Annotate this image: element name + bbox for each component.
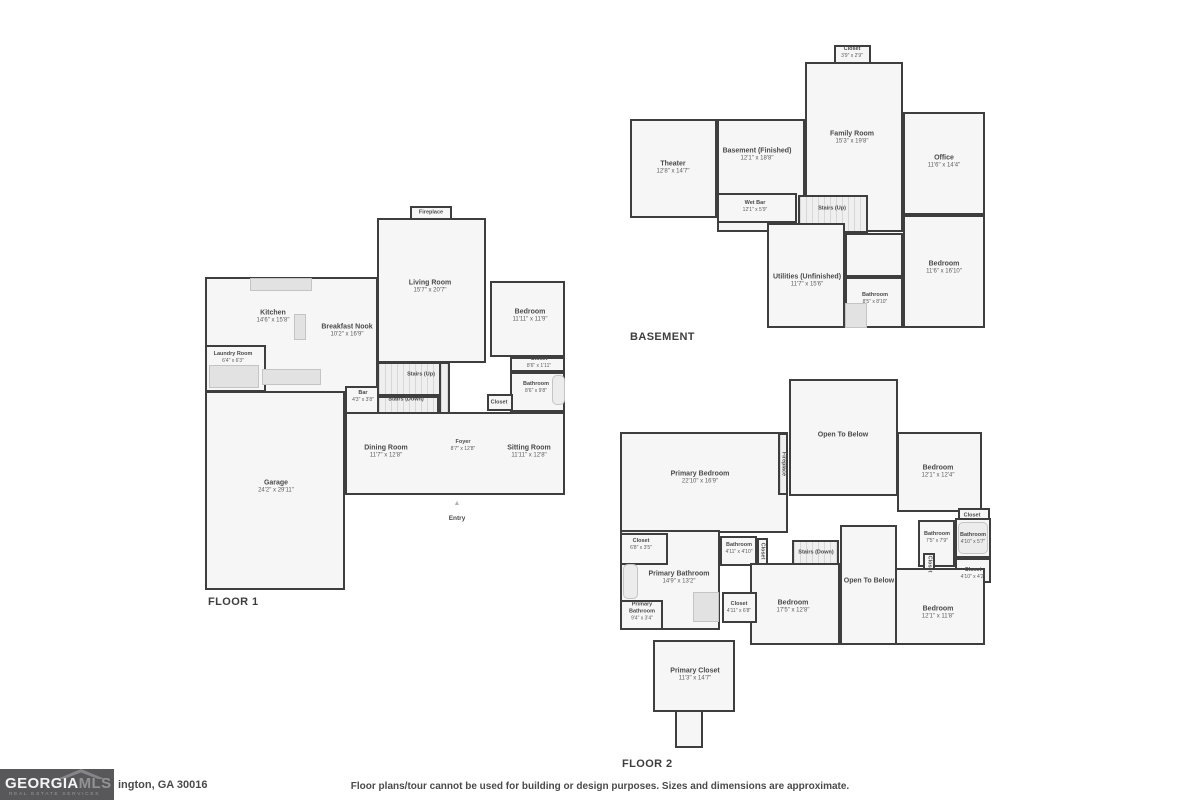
floor-2-primary-bedroom-label: Primary Bedroom22'10" x 16'9" (671, 470, 730, 487)
property-address: ington, GA 30016 (118, 779, 207, 791)
floor-1-foyer-label: Foyer8'7" x 12'8" (451, 439, 476, 453)
basement-theater-label: Theater12'8" x 14'7" (657, 160, 690, 177)
floor-1-garage-label: Garage24'2" x 29'11" (258, 479, 294, 496)
basement-basement-closet (845, 303, 867, 328)
floor-2-closet-bump-label: Closet (964, 512, 981, 519)
floor-2-primary-bathroom-label: Primary Bathroom14'9" x 13'2" (648, 570, 709, 587)
floor-2-shower (693, 592, 719, 622)
logo-georgia-text: GEORGIA (5, 775, 79, 792)
floor-1-breakfast-nook-label: Breakfast Nook10'2" x 16'9" (321, 323, 372, 340)
floor-1-kitchen-counter (250, 278, 312, 291)
logo-text-row: GEORGIAMLS (5, 776, 112, 792)
basement-bedroom-label: Bedroom11'6" x 16'10" (926, 260, 962, 277)
floor-1-bathroom-label: Bathroom8'6" x 9'8" (523, 381, 549, 395)
floor-1-kitchen-appliances (262, 369, 321, 385)
floor-2-closet-left-label: Closet6'8" x 3'5" (630, 538, 652, 552)
floor-1-bedroom-label: Bedroom11'11" x 11'9" (513, 308, 548, 325)
logo-subtext: REAL ESTATE SERVICES (9, 792, 100, 797)
floor-1-kitchen-label: Kitchen14'6" x 15'8" (257, 309, 290, 326)
floor-1-stairs-down-label: Stairs (Down) (388, 396, 423, 403)
georgia-mls-logo: GEORGIAMLS REAL ESTATE SERVICES (0, 769, 114, 800)
floor-2-floor-2-title: FLOOR 2 (622, 758, 672, 770)
floor-1-bathtub (552, 375, 565, 405)
basement-bathroom-label: Bathroom8'5" x 8'10" (862, 292, 888, 306)
basement-closet-top-label: Closet3'9" x 2'9" (841, 46, 863, 60)
floor-1-kitchen-island (294, 314, 306, 340)
floor-1-sitting-room-label: Sitting Room11'11" x 12'8" (507, 444, 551, 461)
floor-1-laundry-room-label: Laundry Room6'4" x 6'3" (214, 351, 253, 365)
floor-1-fireplace-label: Fireplace (419, 209, 443, 216)
floor-2-closet-center-label: Closet4'11" x 6'8" (727, 601, 751, 615)
floor-2-open-to-below-center-label: Open To Below (844, 576, 894, 585)
floor-2-bedroom-bottom-right-label: Bedroom12'1" x 11'8" (922, 605, 954, 622)
floor-1-laundry-appliances (209, 365, 259, 388)
basement-utilities-label: Utilities (Unfinished)11'7" x 15'6" (773, 273, 841, 290)
floor-2-bathtub-left (623, 564, 638, 599)
floor-2-stairs-down-label: Stairs (Down) (798, 549, 833, 556)
floor-1-floor-1-title: FLOOR 1 (208, 596, 258, 608)
floor-2-closet-vert-right-label: Closet (925, 556, 932, 573)
basement-hallway (845, 233, 903, 277)
floorplan-page: FireplaceLiving Room15'7" x 20'7"Kitchen… (0, 0, 1200, 800)
floor-2-open-to-below-top-label: Open To Below (818, 430, 868, 439)
floor-1-stairs-up-label: Stairs (Up) (407, 371, 435, 378)
floor-2-bathroom-right-2-label: Bathroom4'10" x 5'7" (960, 532, 986, 546)
floor-1-dining-room-label: Dining Room11'7" x 12'8" (364, 444, 408, 461)
logo-mls-text: MLS (79, 775, 112, 792)
basement-basement-title: BASEMENT (630, 331, 695, 343)
basement-wet-bar-label: Wet Bar12'1" x 5'9" (743, 200, 768, 214)
basement-office-label: Office11'6" x 14'4" (928, 154, 960, 171)
basement-family-room-label: Family Room15'3" x 19'8" (830, 130, 874, 147)
floor-2-bathroom-right-1-label: Bathroom7'5" x 7'9" (924, 531, 950, 545)
basement-basement-finished-label: Basement (Finished)12'1" x 18'8" (723, 147, 792, 164)
floor-2-fireplace-label: Fireplace (779, 452, 786, 476)
floor-2-primary-bathroom-small-label: Primary Bathroom9'4" x 3'4" (621, 602, 663, 623)
entry-label: Entry (449, 515, 466, 522)
floor-2-primary-closet-neck (675, 710, 703, 748)
floor-1-entry-marker: ▲Entry (449, 500, 466, 525)
floor-2-closet-right-2-label: Closet4'10" x 4'2" (961, 567, 986, 581)
basement-stairs-up-label: Stairs (Up) (818, 205, 846, 212)
floor-1-closet-label: Closet8'6" x 1'11" (527, 356, 551, 370)
floor-2-closet-vert-center-label: Closet (758, 543, 765, 560)
floor-2-bedroom-center-label: Bedroom17'5" x 12'8" (777, 599, 810, 616)
entry-arrow-icon: ▲ (449, 500, 466, 507)
floor-2-bathroom-center-label: Bathroom4'11" x 4'10" (725, 542, 752, 556)
floor-1-foyer-closet-label: Closet (491, 399, 508, 406)
floor-1-living-room-label: Living Room15'7" x 20'7" (409, 279, 451, 296)
floor-1-bar-label: Bar4'3" x 3'8" (352, 390, 374, 404)
floor-2-bedroom-top-right-label: Bedroom12'1" x 12'4" (922, 464, 955, 481)
floor-2-primary-closet-label: Primary Closet11'3" x 14'7" (670, 667, 719, 684)
